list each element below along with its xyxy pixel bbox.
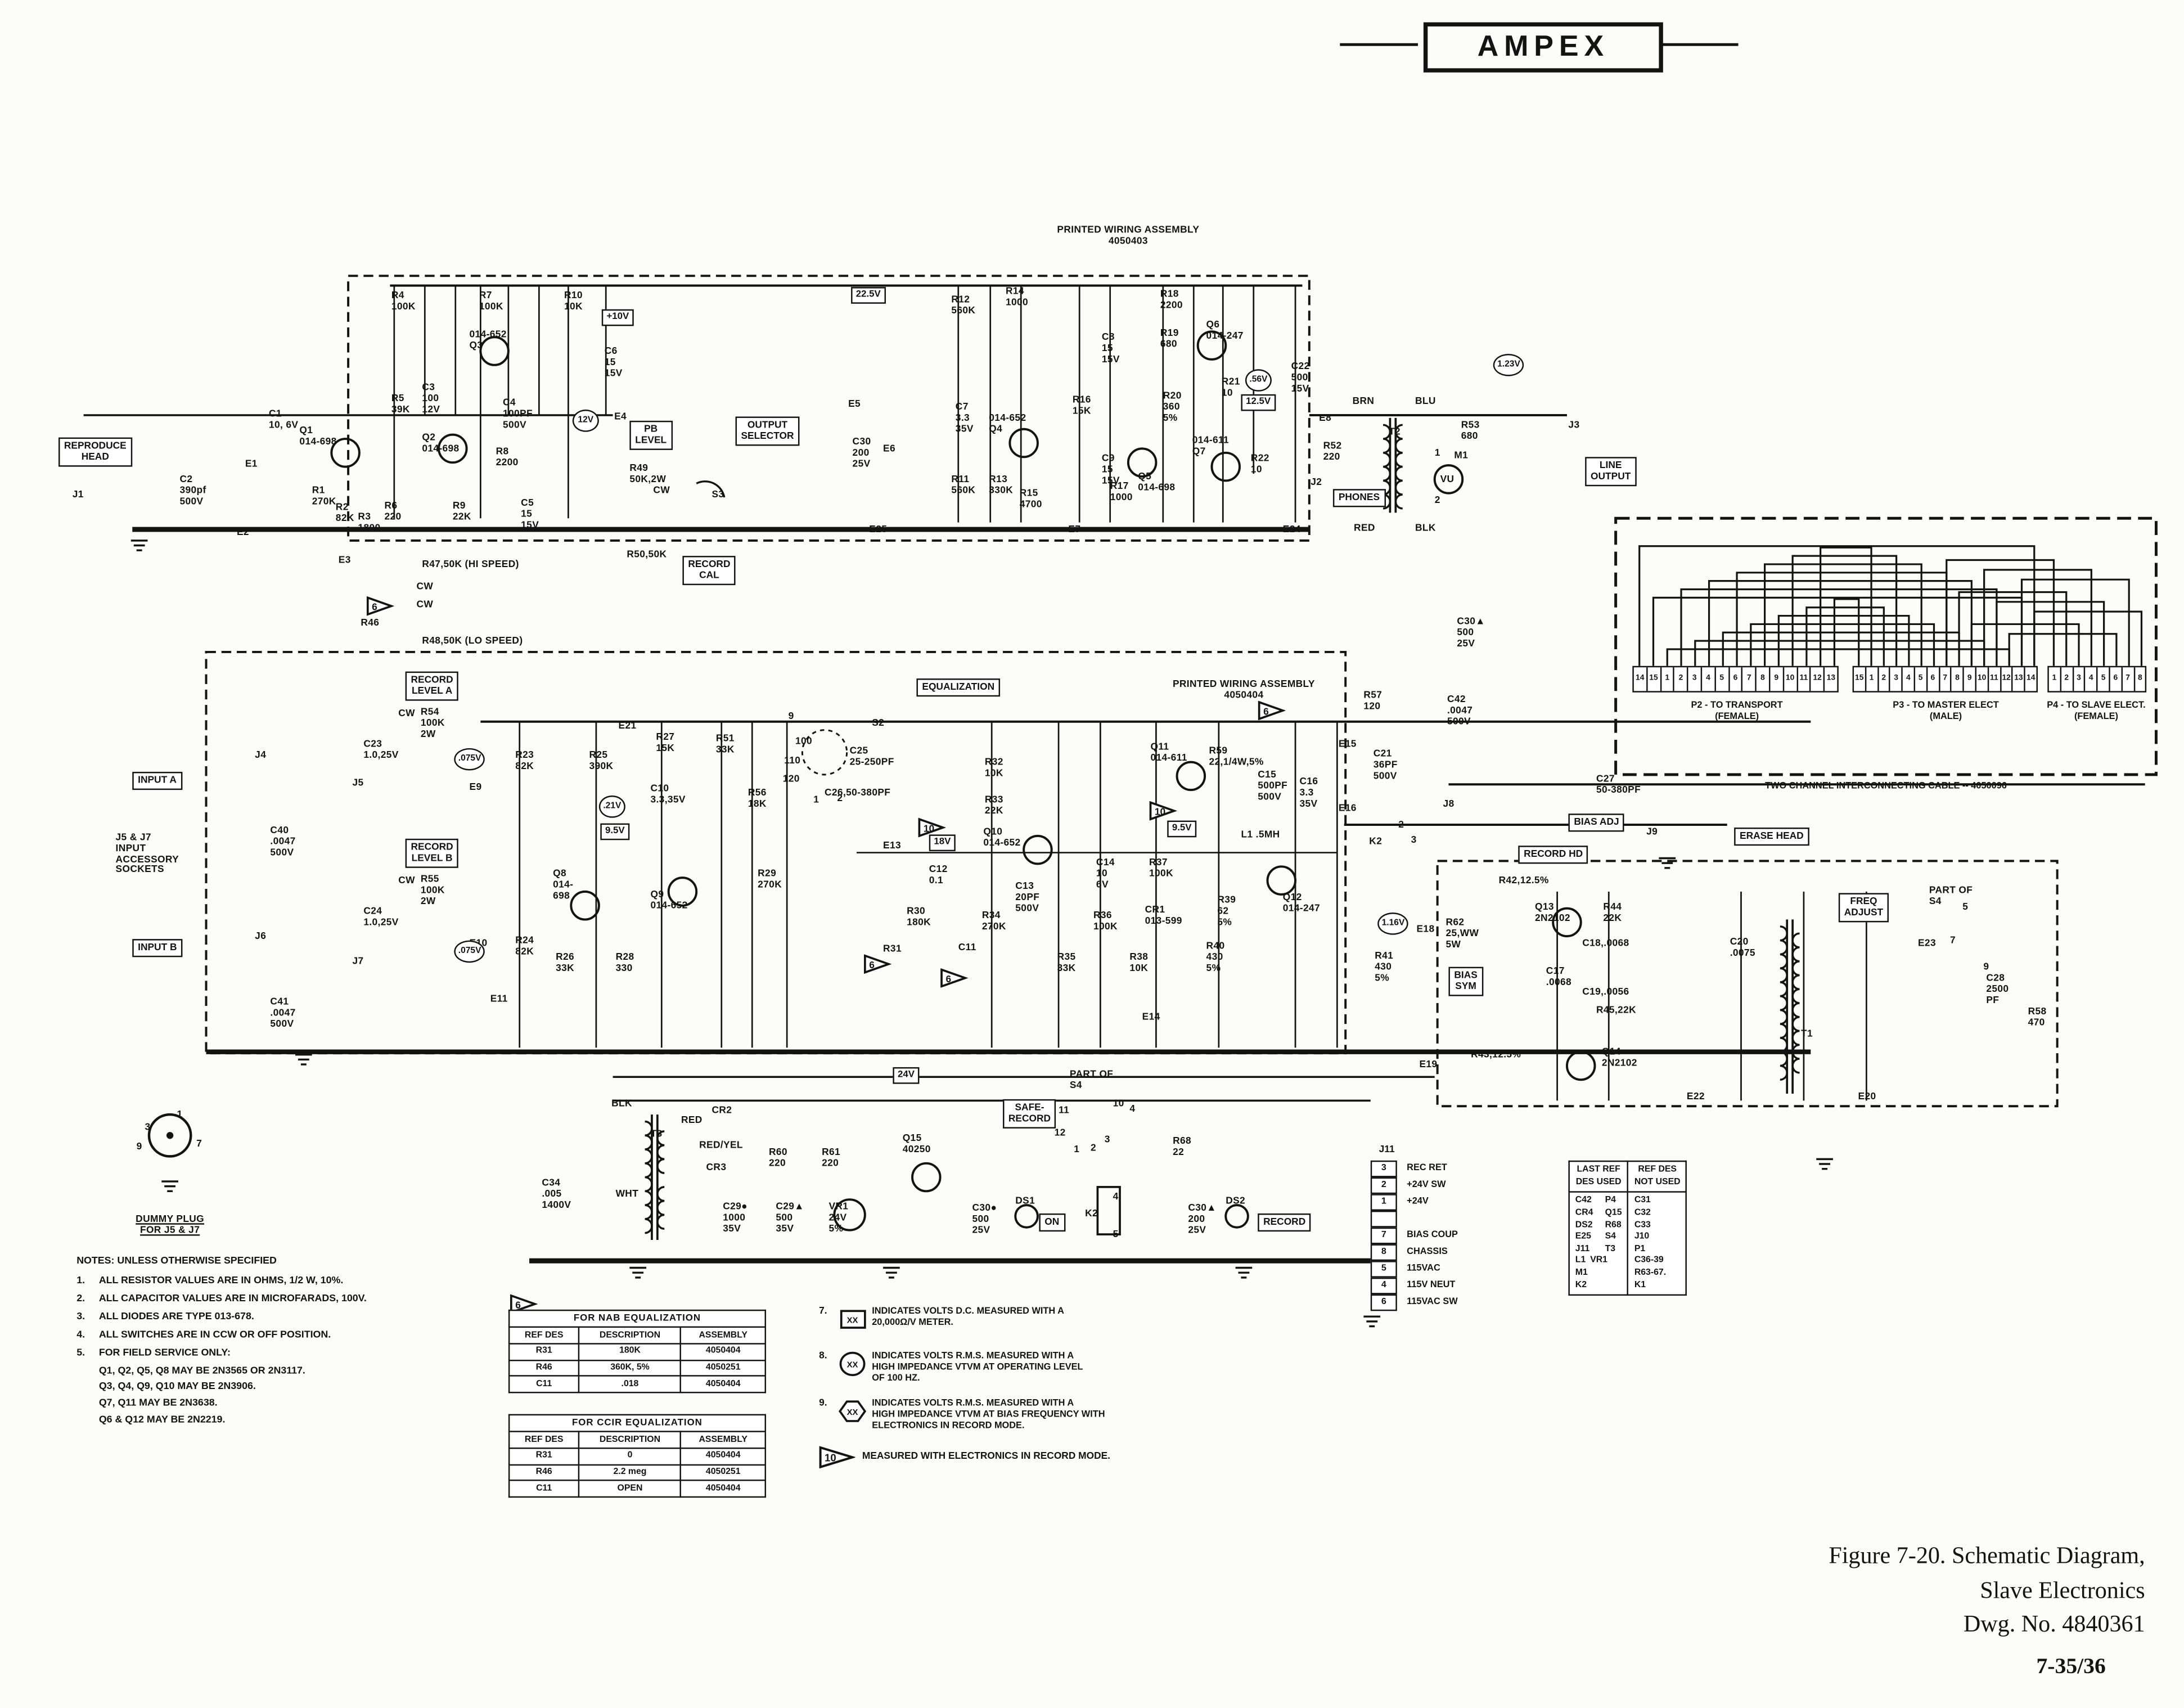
j11-pin-label: 115VAC SW <box>1407 1298 1457 1307</box>
pin-cell: 5 <box>1715 667 1729 691</box>
j11-pin-cell: 1 <box>1371 1194 1397 1211</box>
measurement-legend: 7.XXINDICATES VOLTS D.C. MEASURED WITH A… <box>819 1307 1237 1445</box>
callout-box: RECORD HD <box>1518 846 1588 864</box>
pin-cell: 15 <box>1854 667 1866 691</box>
j11-pin-label: +24V <box>1407 1198 1429 1207</box>
pin-cell: 10 <box>1784 667 1798 691</box>
table-header: DESCRIPTION <box>579 1327 681 1343</box>
table-header: ASSEMBLY <box>681 1327 765 1343</box>
svg-text:6: 6 <box>945 973 951 985</box>
flag-10-icon: 10 <box>819 1446 855 1469</box>
callout-box: RECORD LEVEL B <box>406 839 459 868</box>
legend-item-10: 10 MEASURED WITH ELECTRONICS IN RECORD M… <box>819 1446 1110 1469</box>
caption-line2: Slave Electronics <box>1532 1574 2145 1608</box>
j11-pin-row: 3REC RET <box>1371 1161 1458 1177</box>
callout-box: PB LEVEL <box>629 421 672 450</box>
pin-cell: 7 <box>1743 667 1757 691</box>
table-header: DESCRIPTION <box>579 1432 681 1448</box>
pin-cell: 2 <box>1879 667 1891 691</box>
svg-text:6: 6 <box>372 601 377 613</box>
caption-line1: Figure 7-20. Schematic Diagram, <box>1532 1539 2145 1574</box>
j11-pin-label: BIAS COUP <box>1407 1231 1458 1240</box>
pin-cell: 12 <box>1811 667 1825 691</box>
callout-box: RECORD CAL <box>682 556 736 585</box>
j11-pin-cell: 4 <box>1371 1277 1397 1295</box>
svg-text:10: 10 <box>1155 806 1165 817</box>
table-cell: 4050404 <box>681 1448 765 1464</box>
j11-pin-cell: 5 <box>1371 1261 1397 1278</box>
svg-text:6: 6 <box>1263 705 1269 717</box>
p2-label: P2 - TO TRANSPORT (FEMALE) <box>1646 701 1827 724</box>
last-ref-des-used: C42 P4 CR4 Q15 DS2 R68 E25 S4 J11 T3 L1 … <box>1569 1192 1628 1296</box>
pin-cell: 7 <box>2122 667 2135 691</box>
pin-cell: 1 <box>2049 667 2061 691</box>
table-cell: 4050404 <box>681 1343 765 1360</box>
pin-cell: 11 <box>1989 667 2001 691</box>
j11-pin-row: 2+24V SW <box>1371 1177 1458 1194</box>
pin-cell: 11 <box>1798 667 1811 691</box>
j11-connector: 3REC RET2+24V SW1+24V7BIAS COUP8CHASSIS5… <box>1371 1161 1458 1311</box>
table-cell: 4050404 <box>681 1481 765 1497</box>
notes-title: NOTES: UNLESS OTHERWISE SPECIFIED <box>76 1255 536 1266</box>
table-title: FOR NAB EQUALIZATION <box>509 1310 765 1327</box>
legend-item: 9.XXINDICATES VOLTS R.M.S. MEASURED WITH… <box>819 1399 1237 1433</box>
pin-cell: 5 <box>2098 667 2110 691</box>
svg-text:10: 10 <box>825 1452 836 1464</box>
j11-pin-label: 115V NEUT <box>1407 1282 1455 1291</box>
caption-line3: Dwg. No. 4840361 <box>1532 1608 2145 1642</box>
j11-pin-label: +24V SW <box>1407 1181 1446 1190</box>
legend-num: 9. <box>819 1399 839 1409</box>
p4-label: P4 - TO SLAVE ELECT. (FEMALE) <box>2006 701 2184 724</box>
legend-text: INDICATES VOLTS D.C. MEASURED WITH A 20,… <box>872 1307 1064 1330</box>
legend-10-text: MEASURED WITH ELECTRONICS IN RECORD MODE… <box>862 1452 1110 1463</box>
pin-cell: 8 <box>2135 667 2145 691</box>
legend-num: 7. <box>819 1307 839 1318</box>
note-item: 1.ALL RESISTOR VALUES ARE IN OHMS, 1/2 W… <box>76 1275 536 1286</box>
nab-equalization-table: FOR NAB EQUALIZATIONREF DESDESCRIPTIONAS… <box>508 1310 766 1393</box>
j11-pin-row: 8CHASSIS <box>1371 1244 1458 1261</box>
ampex-logo: AMPEX <box>1424 23 1663 73</box>
note-item: 3.ALL DIODES ARE TYPE 013-678. <box>76 1311 536 1322</box>
dc-voltage-marker: 24V <box>893 1067 919 1084</box>
pin-cell: 9 <box>1964 667 1976 691</box>
pin-cell: 6 <box>1730 667 1743 691</box>
flag-note-icon: 6 <box>940 968 969 988</box>
pin-cell: 2 <box>2061 667 2074 691</box>
pin-cell: 9 <box>1770 667 1784 691</box>
hex-symbol-icon: XX <box>839 1399 872 1431</box>
j11-pin-label: CHASSIS <box>1407 1248 1448 1257</box>
legend-text: INDICATES VOLTS R.M.S. MEASURED WITH A H… <box>872 1351 1083 1386</box>
p4-connector: 12345678 <box>2047 666 2147 693</box>
dc-voltage-marker: +10V <box>602 309 634 326</box>
svg-text:6: 6 <box>869 959 875 970</box>
legend-item: 7.XXINDICATES VOLTS D.C. MEASURED WITH A… <box>819 1307 1237 1339</box>
pin-cell: 10 <box>1976 667 1989 691</box>
j11-pin-row: 4115V NEUT <box>1371 1278 1458 1295</box>
callout-box: RECORD <box>1258 1213 1311 1231</box>
cable-caption: TWO CHANNEL INTERCONNECTING CABLE -- 405… <box>1677 781 2095 793</box>
j11-pin-cell: 8 <box>1371 1244 1397 1261</box>
j11-pin-row: 7BIAS COUP <box>1371 1228 1458 1244</box>
callout-box: REPRODUCE HEAD <box>58 438 132 467</box>
callout-box: ERASE HEAD <box>1734 828 1809 846</box>
table-cell: 2.2 meg <box>579 1464 681 1481</box>
pin-cell: 4 <box>1702 667 1715 691</box>
table-cell: .018 <box>579 1376 681 1392</box>
callout-box: RECORD LEVEL A <box>406 672 459 701</box>
flag-note-icon: 6 <box>1258 701 1286 721</box>
pin-cell: 3 <box>1890 667 1903 691</box>
pin-cell: 8 <box>1757 667 1770 691</box>
callout-box: LINE OUTPUT <box>1585 457 1636 486</box>
pin-cell: 15 <box>1647 667 1661 691</box>
note-item: 5.FOR FIELD SERVICE ONLY: <box>76 1347 536 1358</box>
table-title: FOR CCIR EQUALIZATION <box>509 1415 765 1432</box>
svg-text:XX: XX <box>847 1316 858 1325</box>
logo-rule-left <box>1340 43 1418 46</box>
pin-cell: 4 <box>2086 667 2098 691</box>
p2-connector: 141512345678910111213 <box>1632 666 1838 693</box>
pin-cell: 4 <box>1903 667 1915 691</box>
j11-pin-row: 1+24V <box>1371 1194 1458 1211</box>
table-header: REF DES <box>509 1432 579 1448</box>
page-number: 7-35/36 <box>2036 1655 2105 1680</box>
j11-pin-cell <box>1371 1210 1397 1228</box>
callout-box: EQUALIZATION <box>916 678 1000 696</box>
j11-pin-row: 5115VAC <box>1371 1261 1458 1278</box>
pin-cell: 1 <box>1866 667 1879 691</box>
pin-cell: 14 <box>2025 667 2036 691</box>
legend-text: INDICATES VOLTS R.M.S. MEASURED WITH A H… <box>872 1399 1105 1433</box>
note-item: 4.ALL SWITCHES ARE IN CCW OR OFF POSITIO… <box>76 1329 536 1340</box>
table-cell: C11 <box>509 1481 579 1497</box>
dc-voltage-marker: 12.5V <box>1241 394 1275 411</box>
table-cell: R31 <box>509 1448 579 1464</box>
callout-box: SAFE- RECORD <box>1003 1099 1056 1129</box>
schematic-page: AMPEX C1 10, 6VE1C2 390pf 500VJ1Q1 014-6… <box>0 0 2184 1708</box>
table-cell: 180K <box>579 1343 681 1360</box>
pin-cell: 1 <box>1661 667 1674 691</box>
table-header: LAST REF DES USED <box>1569 1161 1628 1192</box>
p3-connector: 151234567891011121314 <box>1853 666 2038 693</box>
pin-cell: 3 <box>2073 667 2086 691</box>
callout-box: BIAS ADJ <box>1568 813 1624 831</box>
flag-note-icon: 6 <box>366 596 394 616</box>
callout-box: PHONES <box>1333 489 1385 507</box>
flag-note-icon: 10 <box>918 818 946 838</box>
note-item: 2.ALL CAPACITOR VALUES ARE IN MICROFARAD… <box>76 1293 536 1304</box>
ref-des-not-used: C31 C32 C33 J10 P1 C36-39 R63-67. K1 <box>1628 1192 1687 1296</box>
j11-pin-label: 115VAC <box>1407 1265 1440 1274</box>
logo-rule-right <box>1660 43 1739 46</box>
table-cell: 4050251 <box>681 1464 765 1481</box>
callout-box: FREQ ADJUST <box>1839 893 1889 922</box>
svg-text:10: 10 <box>924 822 934 834</box>
table-cell: OPEN <box>579 1481 681 1497</box>
callout-box: INPUT B <box>132 939 182 957</box>
pin-cell: 8 <box>1952 667 1964 691</box>
j11-pin-row <box>1371 1211 1458 1228</box>
legend-item: 8.XXINDICATES VOLTS R.M.S. MEASURED WITH… <box>819 1351 1237 1386</box>
legend-num: 8. <box>819 1351 839 1362</box>
note-subitem: Q7, Q11 MAY BE 2N3638. <box>99 1398 537 1409</box>
circle-symbol-icon: XX <box>839 1351 872 1383</box>
pin-cell: 13 <box>1825 667 1837 691</box>
pin-cell: 6 <box>1928 667 1940 691</box>
note-subitem: Q6 & Q12 MAY BE 2N2219. <box>99 1414 537 1426</box>
callout-box: OUTPUT SELECTOR <box>736 416 800 446</box>
pin-cell: 13 <box>2013 667 2025 691</box>
note-subitem: Q1, Q2, Q5, Q8 MAY BE 2N3565 OR 2N3117. <box>99 1365 537 1376</box>
note-subitem: Q3, Q4, Q9, Q10 MAY BE 2N3906. <box>99 1381 537 1392</box>
svg-text:XX: XX <box>847 1408 858 1417</box>
notes-items: 1.ALL RESISTOR VALUES ARE IN OHMS, 1/2 W… <box>76 1275 536 1426</box>
pin-cell: 14 <box>1634 667 1647 691</box>
j11-pin-cell: 3 <box>1371 1160 1397 1177</box>
flag-note-icon: 10 <box>1149 801 1177 821</box>
callout-box: ON <box>1039 1213 1065 1231</box>
pin-cell: 6 <box>2110 667 2123 691</box>
dc-voltage-marker: 22.5V <box>851 287 885 303</box>
table-header: REF DES NOT USED <box>1628 1161 1687 1192</box>
ref-des-table: LAST REF DES USEDREF DES NOT USEDC42 P4 … <box>1568 1161 1687 1296</box>
dc-voltage-marker: 9.5V <box>600 824 629 840</box>
svg-text:XX: XX <box>847 1361 858 1370</box>
j11-pin-cell: 6 <box>1371 1294 1397 1311</box>
callout-box: BIAS SYM <box>1448 967 1483 996</box>
table-header: ASSEMBLY <box>681 1432 765 1448</box>
table-cell: 360K, 5% <box>579 1360 681 1376</box>
ccir-equalization-table: FOR CCIR EQUALIZATIONREF DESDESCRIPTIONA… <box>508 1414 766 1498</box>
table-cell: 4050404 <box>681 1376 765 1392</box>
pin-cell: 2 <box>1675 667 1688 691</box>
pin-cell: 5 <box>1915 667 1928 691</box>
table-cell: R46 <box>509 1464 579 1481</box>
pin-cell: 7 <box>1940 667 1952 691</box>
figure-caption: Figure 7-20. Schematic Diagram, Slave El… <box>1532 1539 2145 1642</box>
notes-block: NOTES: UNLESS OTHERWISE SPECIFIED 1.ALL … <box>76 1255 536 1426</box>
dc-voltage-marker: 9.5V <box>1167 821 1196 837</box>
table-cell: 4050251 <box>681 1360 765 1376</box>
pin-cell: 12 <box>2001 667 2014 691</box>
flag-note-icon: 6 <box>863 954 891 974</box>
j11-pin-cell: 2 <box>1371 1177 1397 1194</box>
ampex-logo-text: AMPEX <box>1478 30 1609 64</box>
table-cell: 0 <box>579 1448 681 1464</box>
callout-box: INPUT A <box>132 772 182 790</box>
j11-pin-row: 6115VAC SW <box>1371 1295 1458 1311</box>
j11-pin-cell: 7 <box>1371 1227 1397 1244</box>
j11-pin-label: REC RET <box>1407 1165 1447 1174</box>
j11-label: J11 <box>1379 1145 1395 1155</box>
pin-cell: 3 <box>1688 667 1702 691</box>
box-symbol-icon: XX <box>839 1307 872 1339</box>
